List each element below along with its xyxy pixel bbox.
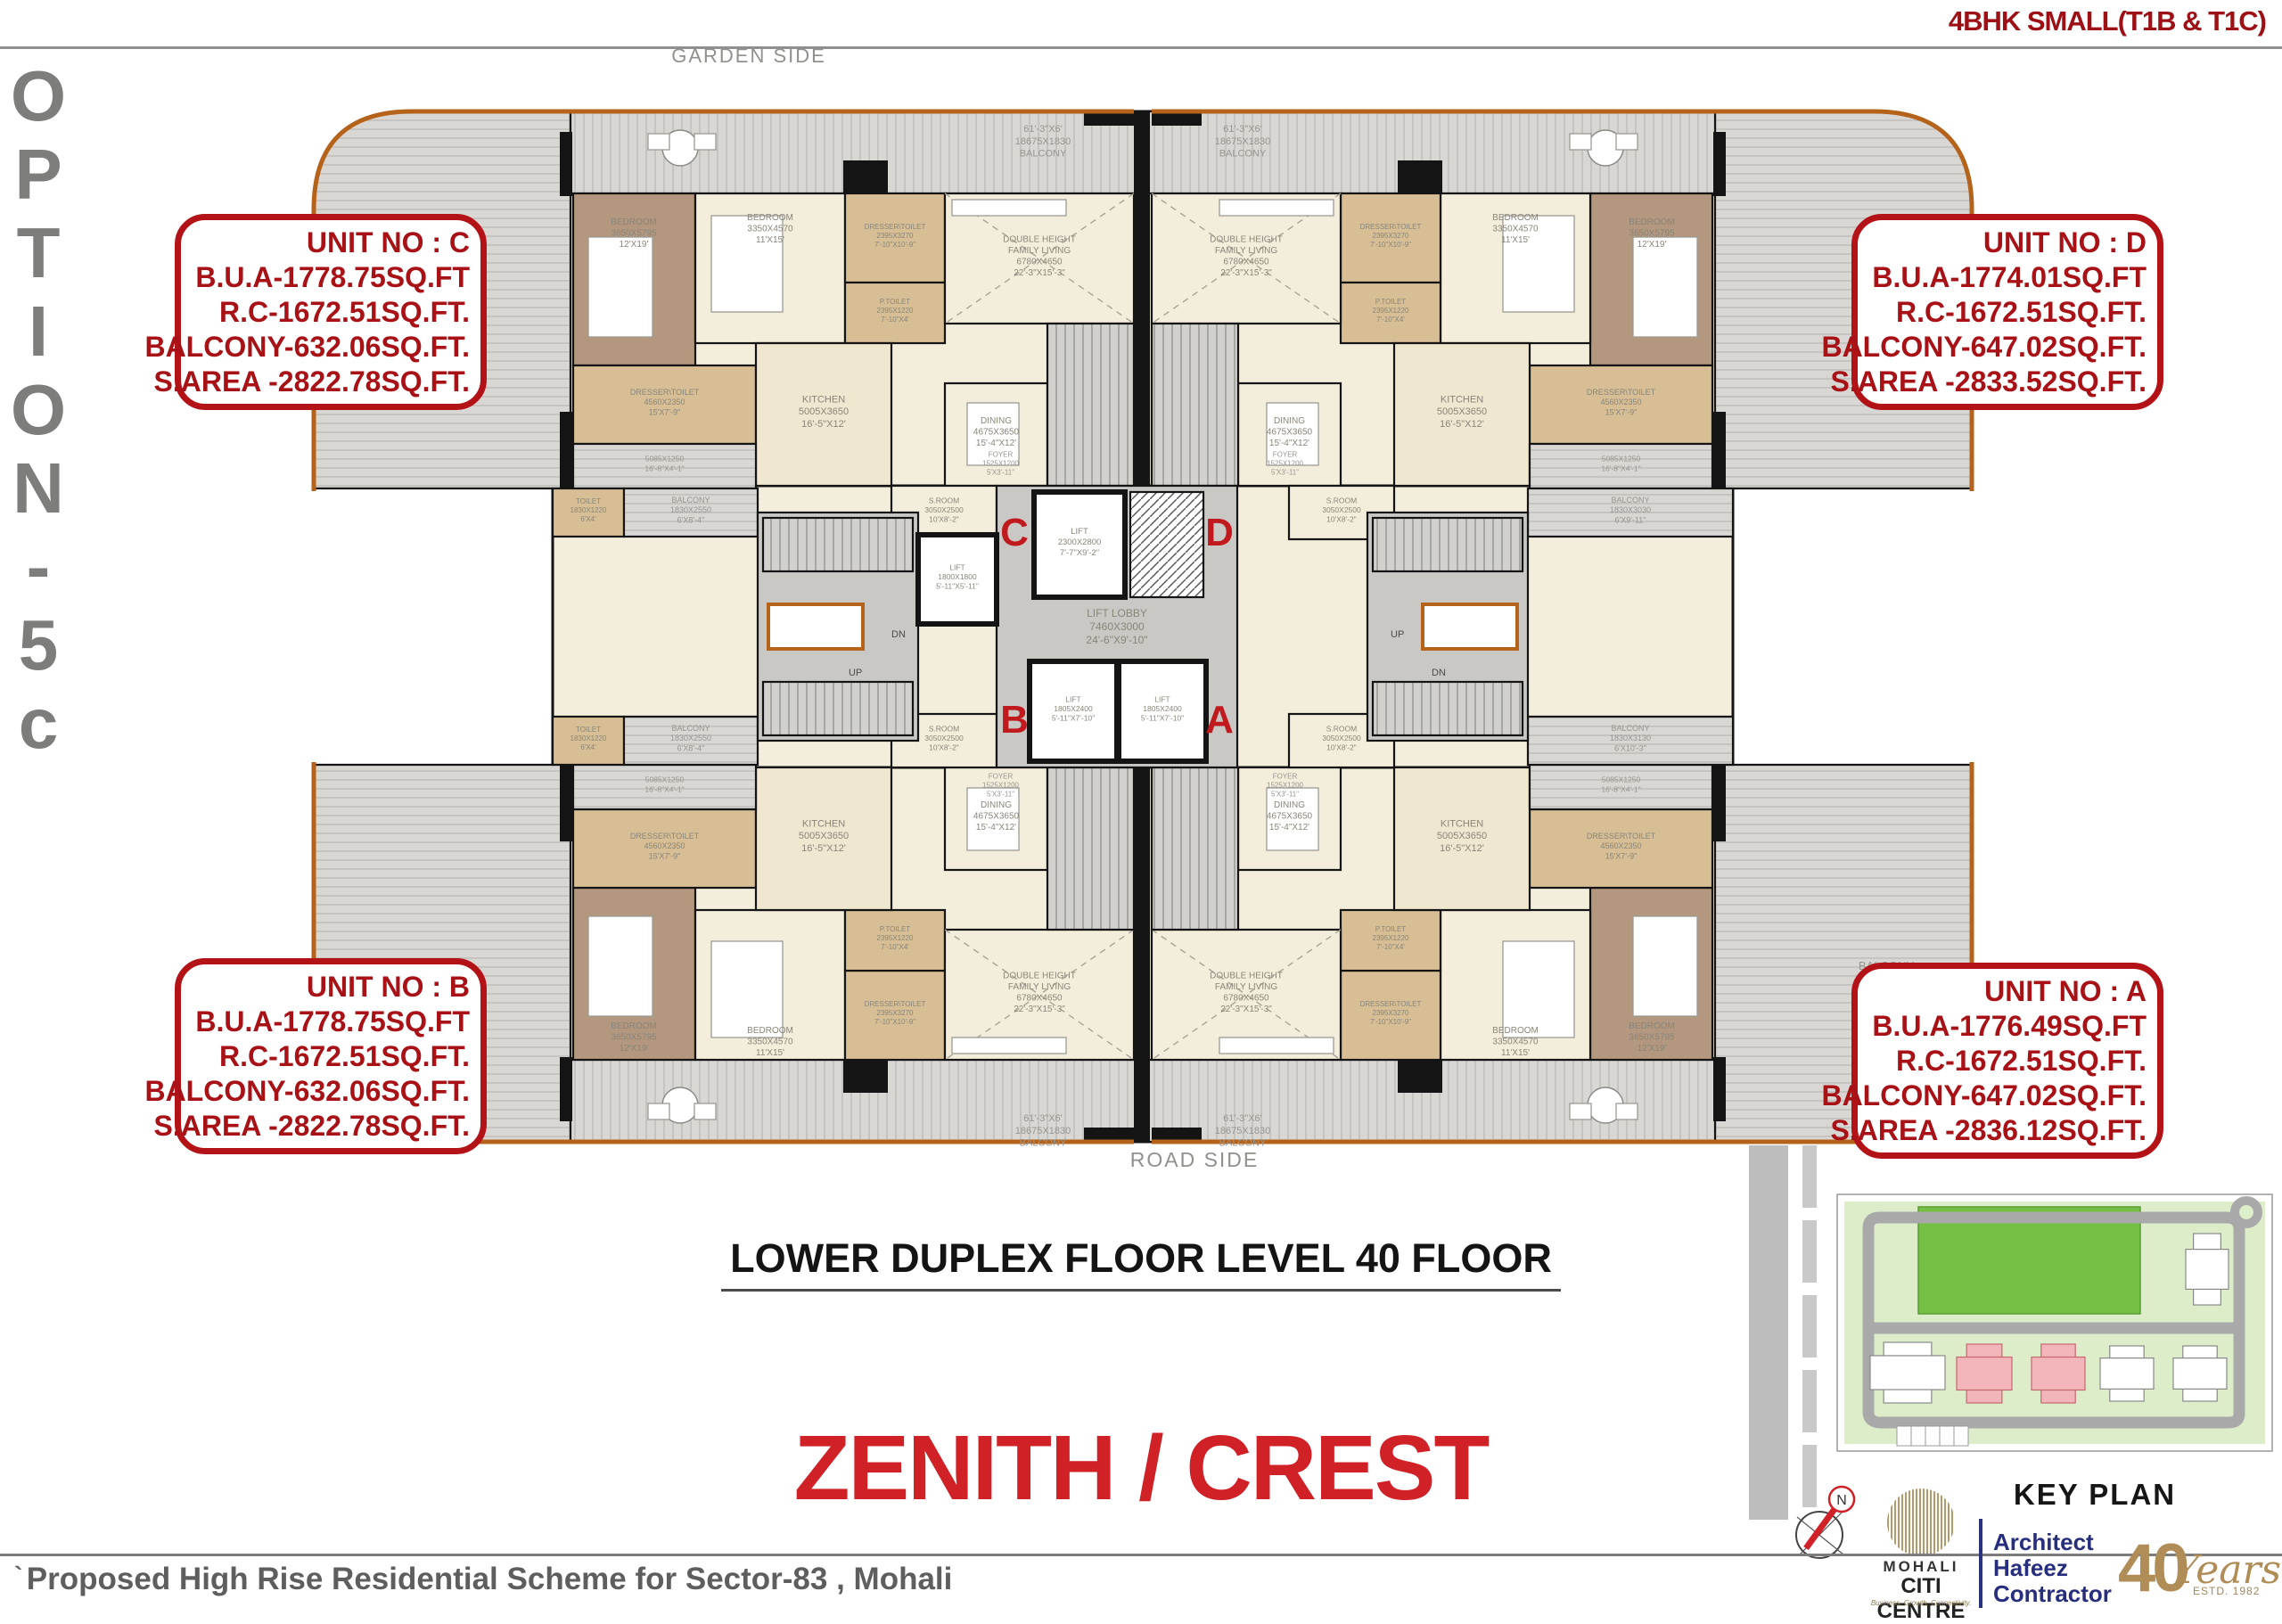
wall-segment xyxy=(1713,132,1726,196)
unit-letter-d: D xyxy=(1205,511,1234,554)
unit-info-box-b: UNIT NO : B B.U.A-1778.75SQ.FT R.C-1672.… xyxy=(175,958,487,1154)
party-wall xyxy=(1134,767,1150,1142)
unit-info-box-c: UNIT NO : C B.U.A-1778.75SQ.FT R.C-1672.… xyxy=(175,214,487,410)
unit-line: B.U.A-1776.49SQ.FT xyxy=(1872,1009,2147,1044)
unit-line: R.C-1672.51SQ.FT. xyxy=(1896,295,2147,330)
wall-segment xyxy=(1713,412,1726,488)
room-label: P.TOILET2395X12207'-10"X4' xyxy=(877,925,914,951)
furniture xyxy=(711,941,783,1038)
wall-segment xyxy=(560,1057,572,1121)
unit-line: BALCONY-647.02SQ.FT. xyxy=(1821,1079,2147,1113)
unit-line: B.U.A-1774.01SQ.FT xyxy=(1872,260,2147,295)
unit-letter-a: A xyxy=(1205,698,1234,742)
furniture xyxy=(1570,134,1591,150)
unit-letter-b: B xyxy=(1000,698,1029,742)
wall-segment xyxy=(843,1059,888,1093)
key-plan-label: KEY PLAN xyxy=(2006,1478,2184,1512)
unit-line: B.U.A-1778.75SQ.FT xyxy=(195,260,470,295)
architect-line: Hafeez xyxy=(1993,1555,2112,1581)
wall-segment xyxy=(1398,160,1442,194)
compass-needle xyxy=(1806,1509,1835,1548)
room-label: S.ROOM3050X250010'X8'-2" xyxy=(1322,724,1361,751)
unit-line: R.C-1672.51SQ.FT. xyxy=(1896,1044,2147,1079)
architect-line: Contractor xyxy=(1993,1581,2112,1607)
wall-segment xyxy=(560,132,572,196)
keyplan-building-white xyxy=(1870,1356,1945,1390)
furniture xyxy=(1570,1103,1591,1120)
party-wall xyxy=(1134,111,1150,486)
furniture xyxy=(1503,941,1574,1038)
wall-segment xyxy=(1713,765,1726,841)
unit-title: UNIT NO : D xyxy=(1983,226,2147,260)
architect-line: Architect xyxy=(1993,1530,2112,1555)
unit-line: B.U.A-1778.75SQ.FT xyxy=(195,1005,470,1039)
furniture xyxy=(1616,1103,1638,1120)
plan-shape xyxy=(1130,492,1203,597)
furniture xyxy=(952,1038,1066,1054)
room-label: BALCONY1830X30306'X9'-11" xyxy=(1610,496,1651,525)
room-label: P.TOILET2395X12207'-10"X4' xyxy=(877,298,914,324)
unit-line: R.C-1672.51SQ.FT. xyxy=(219,1039,470,1074)
plan-shape xyxy=(1152,767,1238,930)
room-label: KITCHEN5005X365016'-5"X12' xyxy=(1437,394,1487,430)
room-label: BALCONY1830X31306'X10'-3" xyxy=(1610,724,1651,753)
keyplan-building-white xyxy=(2100,1358,2154,1390)
compass-north-label: N xyxy=(1836,1493,1847,1508)
plan-shape xyxy=(763,518,913,571)
mohali-logo-tagline: Business. Growth. Connectivity. xyxy=(1850,1599,1992,1607)
unit-line: S.AREA -2822.78SQ.FT. xyxy=(154,1109,471,1144)
floor-level-title: LOWER DUPLEX FLOOR LEVEL 40 FLOOR xyxy=(535,1235,1747,1292)
room-label: KITCHEN5005X365016'-5"X12' xyxy=(799,818,849,854)
furniture xyxy=(588,237,653,337)
unit-line: R.C-1672.51SQ.FT. xyxy=(219,295,470,330)
unit-info-box-d: UNIT NO : D B.U.A-1774.01SQ.FT R.C-1672.… xyxy=(1851,214,2163,410)
furniture xyxy=(694,1103,716,1120)
mohali-citi-centre-logo-icon xyxy=(1887,1489,1955,1556)
unit-line: BALCONY-632.06SQ.FT. xyxy=(144,1074,470,1109)
plan-shape xyxy=(1423,604,1517,649)
room-label: S.ROOM3050X250010'X8'-2" xyxy=(1322,496,1361,523)
plan-shape xyxy=(1047,767,1134,930)
mohali-logo-line1: MOHALI xyxy=(1867,1558,1974,1576)
keyplan-road-bar xyxy=(1802,1295,1817,1357)
keyplan-parking xyxy=(1897,1426,1968,1446)
room-label: LIFT LOBBY7460X300024'-6"X9'-10" xyxy=(1086,607,1147,646)
keyplan-road-bar xyxy=(1802,1445,1817,1507)
unit-line: BALCONY-647.02SQ.FT. xyxy=(1821,330,2147,365)
room-label: KITCHEN5005X365016'-5"X12' xyxy=(799,394,849,430)
unit-title: UNIT NO : A xyxy=(1984,974,2147,1009)
unit-title: UNIT NO : C xyxy=(307,226,470,260)
room-label: 5085X125016'-8"X4'-1" xyxy=(644,775,684,794)
keyplan-road-bar xyxy=(1802,1220,1817,1283)
stair-direction-label: DN xyxy=(1432,668,1446,678)
room-label: 5085X125016'-8"X4'-1" xyxy=(644,455,684,473)
stair-direction-label: DN xyxy=(891,629,906,640)
furniture xyxy=(588,916,653,1016)
keyplan-road-bar xyxy=(1749,1145,1788,1520)
furniture xyxy=(1219,1038,1334,1054)
unit-line: S.AREA -2833.52SQ.FT. xyxy=(1831,365,2147,399)
unit-line: S.AREA -2822.78SQ.FT. xyxy=(154,365,471,399)
furniture xyxy=(694,134,716,150)
project-title: ZENITH / CREST xyxy=(535,1415,1747,1521)
keyplan-building-white xyxy=(2173,1358,2227,1390)
plan-shape xyxy=(768,604,863,649)
wall-segment xyxy=(1713,1057,1726,1121)
unit-line: BALCONY-632.06SQ.FT. xyxy=(144,330,470,365)
room-label: P.TOILET2395X12207'-10"X4' xyxy=(1373,925,1409,951)
room-label: P.TOILET2395X12207'-10"X4' xyxy=(1373,298,1409,324)
plan-shape xyxy=(1047,324,1134,486)
stair-direction-label: UP xyxy=(849,668,862,678)
forty-years-estd: ESTD. 1982 xyxy=(2193,1585,2260,1597)
unit-title: UNIT NO : B xyxy=(307,970,470,1005)
furniture xyxy=(1633,916,1697,1016)
plan-shape xyxy=(1373,682,1523,735)
room-label: S.ROOM3050X250010'X8'-2" xyxy=(924,496,964,523)
room-label: KITCHEN5005X365016'-5"X12' xyxy=(1437,818,1487,854)
wall-segment xyxy=(843,160,888,194)
keyplan-building-pink xyxy=(2032,1357,2085,1390)
furniture xyxy=(952,200,1066,216)
furniture xyxy=(1616,134,1638,150)
floor-level-title-text: LOWER DUPLEX FLOOR LEVEL 40 FLOOR xyxy=(721,1235,1561,1292)
room-label: 5085X125016'-8"X4'-1" xyxy=(1601,455,1640,473)
plan-shape xyxy=(1152,324,1238,486)
bottom-divider-line xyxy=(0,1554,2282,1556)
stair-direction-label: UP xyxy=(1391,629,1404,640)
unit-letter-c: C xyxy=(1000,511,1029,554)
keyplan-road-bar xyxy=(1802,1370,1817,1432)
footer-scheme-text: ` Proposed High Rise Residential Scheme … xyxy=(14,1562,952,1597)
room-label: 5085X125016'-8"X4'-1" xyxy=(1601,775,1640,794)
keyplan-road-bar xyxy=(1802,1145,1817,1208)
unit-line: S.AREA -2836.12SQ.FT. xyxy=(1831,1113,2147,1148)
architect-logo-text: Architect Hafeez Contractor xyxy=(1993,1530,2112,1607)
footer-text: Proposed High Rise Residential Scheme fo… xyxy=(27,1562,953,1596)
room-label: S.ROOM3050X250010'X8'-2" xyxy=(924,724,964,751)
plan-shape xyxy=(763,682,913,735)
plan-shape xyxy=(1373,518,1523,571)
furniture xyxy=(648,134,669,150)
footer-tick: ` xyxy=(14,1562,22,1589)
furniture xyxy=(1633,237,1697,337)
furniture xyxy=(648,1103,669,1120)
keyplan-building-pink xyxy=(1957,1357,2012,1390)
unit-info-box-a: UNIT NO : A B.U.A-1776.49SQ.FT R.C-1672.… xyxy=(1851,963,2163,1159)
wall-segment xyxy=(560,412,572,488)
wall-segment xyxy=(560,765,572,841)
wall-segment xyxy=(1398,1059,1442,1093)
furniture xyxy=(1219,200,1334,216)
keyplan-building-white xyxy=(2186,1250,2229,1290)
